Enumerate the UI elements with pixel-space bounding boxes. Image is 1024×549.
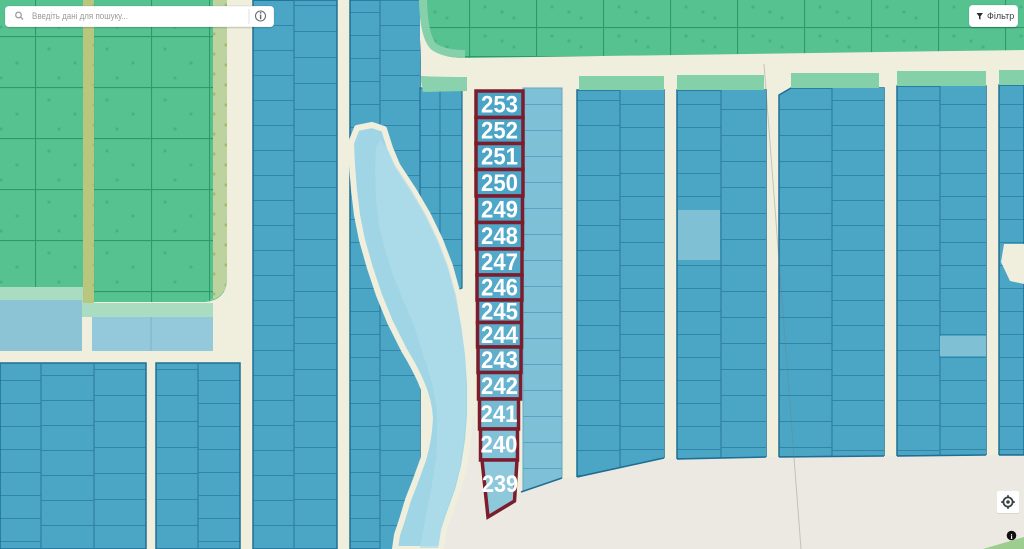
svg-text:240: 240	[481, 432, 518, 459]
svg-text:239: 239	[482, 471, 518, 498]
svg-text:241: 241	[481, 401, 518, 428]
svg-text:249: 249	[481, 196, 518, 223]
svg-text:243: 243	[481, 347, 518, 374]
svg-text:244: 244	[481, 322, 519, 349]
svg-text:251: 251	[481, 144, 518, 171]
svg-text:253: 253	[481, 92, 518, 119]
svg-text:248: 248	[481, 223, 518, 250]
svg-text:Фільтр: Фільтр	[987, 11, 1014, 21]
svg-text:250: 250	[481, 170, 518, 197]
svg-text:252: 252	[481, 118, 518, 145]
svg-text:i: i	[1010, 532, 1012, 541]
svg-text:Введіть дані для пошуку...: Введіть дані для пошуку...	[32, 11, 128, 21]
svg-text:247: 247	[481, 249, 518, 276]
svg-text:242: 242	[481, 373, 518, 400]
